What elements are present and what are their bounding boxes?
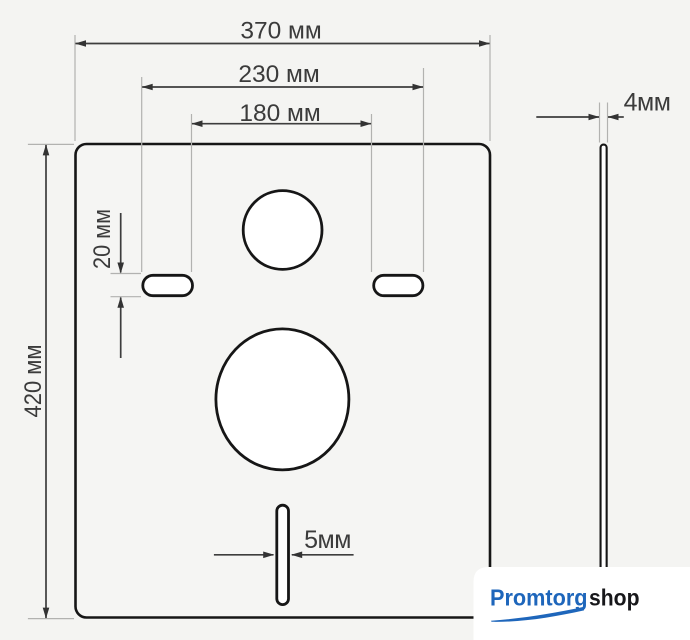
svg-text:5мм: 5мм [304, 526, 351, 554]
svg-text:Promtorg: Promtorg [490, 585, 588, 611]
svg-text:20 мм: 20 мм [89, 209, 116, 269]
svg-text:180 мм: 180 мм [239, 100, 320, 127]
svg-text:shop: shop [589, 585, 640, 611]
svg-text:370 мм: 370 мм [240, 17, 321, 44]
svg-text:230 мм: 230 мм [238, 61, 319, 88]
svg-text:4мм: 4мм [624, 89, 671, 117]
svg-text:420 мм: 420 мм [20, 345, 47, 418]
